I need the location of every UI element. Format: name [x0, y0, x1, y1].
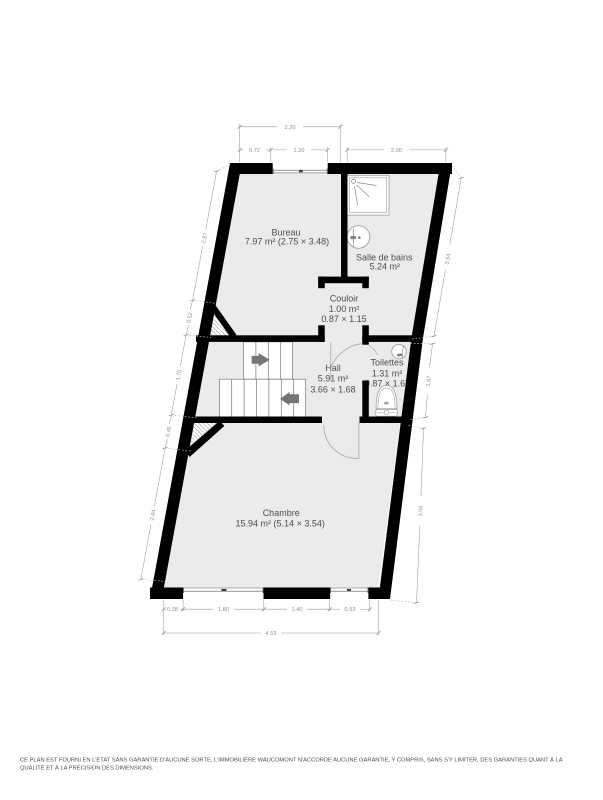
svg-text:3.59: 3.59	[418, 505, 424, 516]
svg-text:1.40: 1.40	[292, 607, 303, 613]
svg-text:Couloir: Couloir	[330, 294, 359, 304]
svg-text:2.00: 2.00	[391, 148, 402, 154]
svg-text:1.67: 1.67	[426, 375, 433, 386]
svg-text:1.31 m²: 1.31 m²	[372, 368, 403, 378]
svg-text:3.66 × 1.68: 3.66 × 1.68	[310, 384, 355, 394]
svg-text:4.53: 4.53	[266, 631, 277, 637]
svg-text:1.20: 1.20	[294, 148, 305, 154]
svg-text:0.38: 0.38	[167, 607, 178, 613]
svg-text:Hall: Hall	[325, 363, 341, 373]
svg-text:1.80: 1.80	[218, 607, 229, 613]
svg-text:0.72: 0.72	[249, 148, 260, 154]
svg-text:5.91 m²: 5.91 m²	[318, 374, 349, 384]
svg-text:7.97 m² (2.75 × 3.48): 7.97 m² (2.75 × 3.48)	[245, 236, 329, 246]
svg-text:CE PLAN EST FOURNI EN L'ETAT S: CE PLAN EST FOURNI EN L'ETAT SANS GARANT…	[20, 757, 563, 764]
svg-text:15.94 m² (5.14 × 3.54): 15.94 m² (5.14 × 3.54)	[236, 519, 325, 529]
svg-text:QUALITÉ ET À LA PRÉCISION DES: QUALITÉ ET À LA PRÉCISION DES DIMENSIONS…	[20, 765, 154, 772]
svg-text:0.93: 0.93	[345, 607, 356, 613]
svg-text:2.20: 2.20	[285, 125, 296, 131]
svg-text:5.24 m²: 5.24 m²	[369, 262, 400, 272]
svg-text:1.00 m²: 1.00 m²	[329, 304, 360, 314]
svg-text:0.87 × 1.15: 0.87 × 1.15	[321, 314, 366, 324]
svg-text:Chambre: Chambre	[263, 508, 300, 518]
